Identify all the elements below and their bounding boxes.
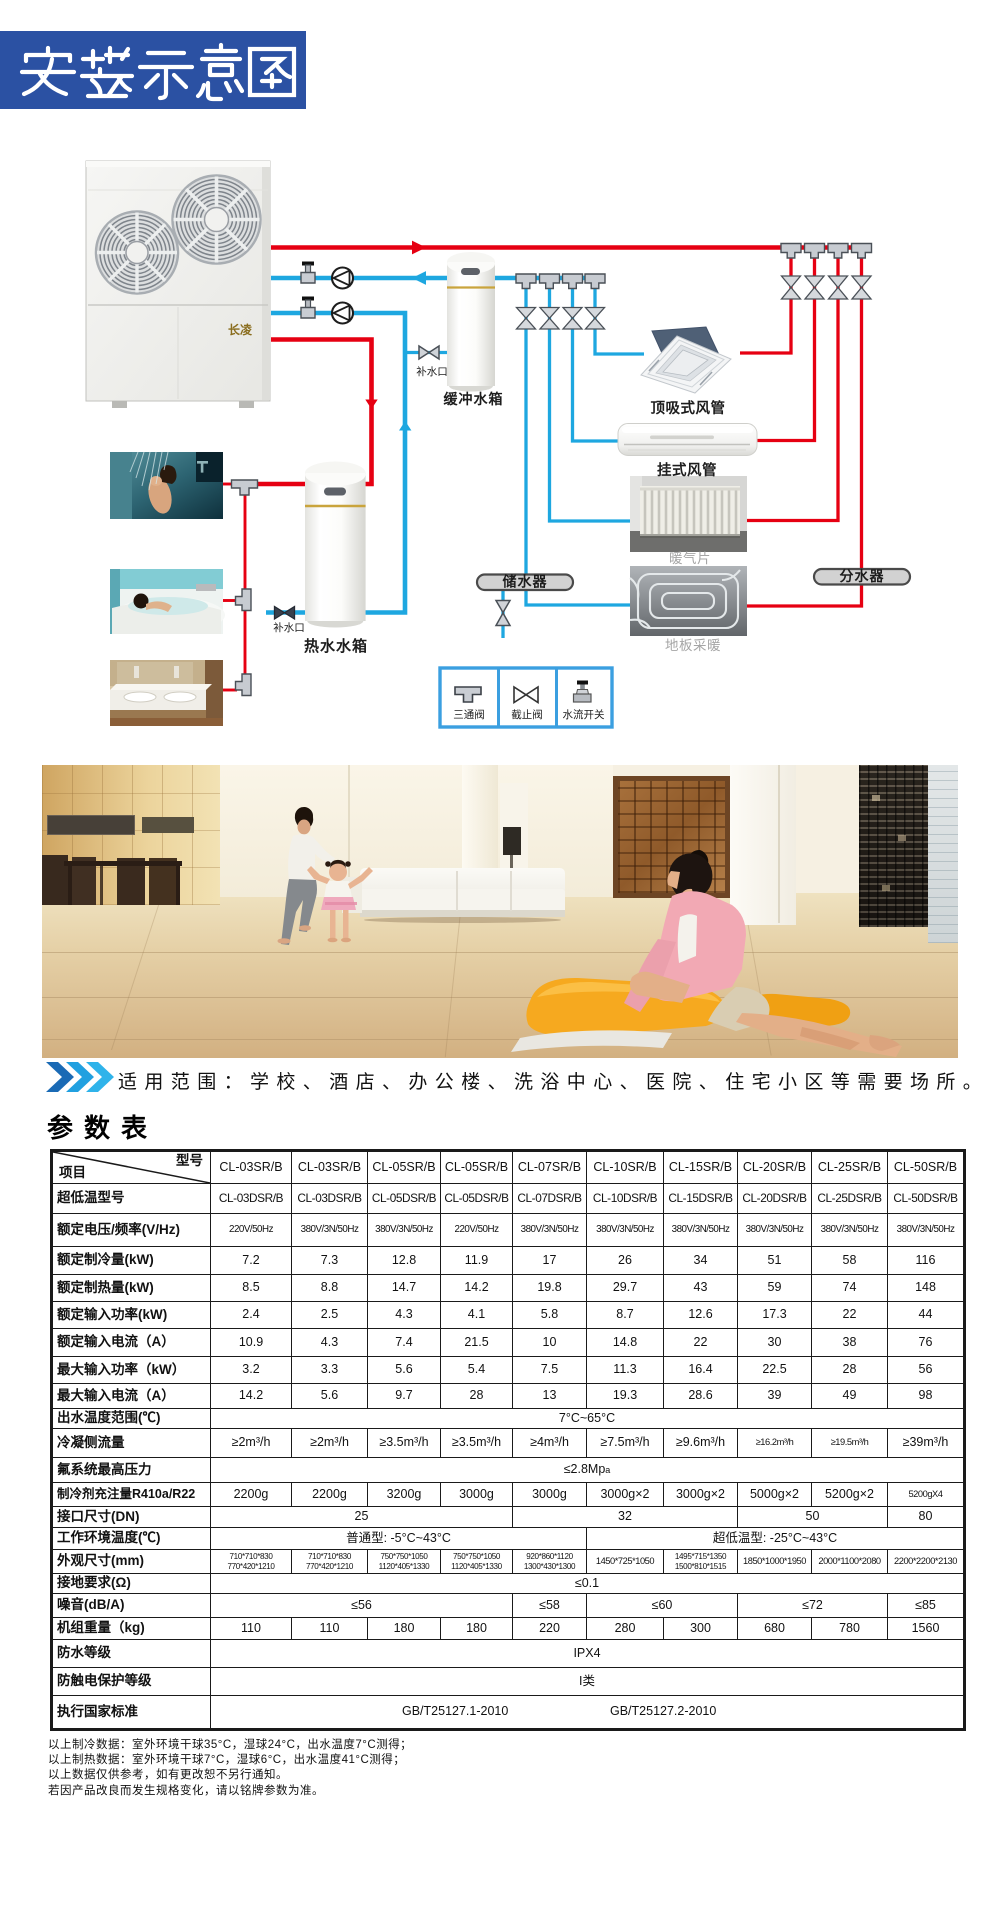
svg-text:缓冲水箱: 缓冲水箱 xyxy=(444,391,504,407)
svg-text:储水器: 储水器 xyxy=(502,574,548,590)
svg-text:挂式风管: 挂式风管 xyxy=(657,461,717,479)
svg-text:三通阀: 三通阀 xyxy=(453,708,485,721)
svg-text:顶吸式风管: 顶吸式风管 xyxy=(651,399,726,417)
svg-text:热水水箱: 热水水箱 xyxy=(304,637,368,655)
svg-text:截止阀: 截止阀 xyxy=(511,708,543,721)
svg-text:补水口: 补水口 xyxy=(273,621,305,634)
svg-text:补水口: 补水口 xyxy=(416,365,448,378)
svg-text:地板采暖: 地板采暖 xyxy=(665,638,721,653)
svg-text:分水器: 分水器 xyxy=(840,568,885,584)
svg-text:长凌: 长凌 xyxy=(228,322,253,337)
svg-text:暖气片: 暖气片 xyxy=(669,551,711,566)
svg-text:水流开关: 水流开关 xyxy=(563,708,605,721)
